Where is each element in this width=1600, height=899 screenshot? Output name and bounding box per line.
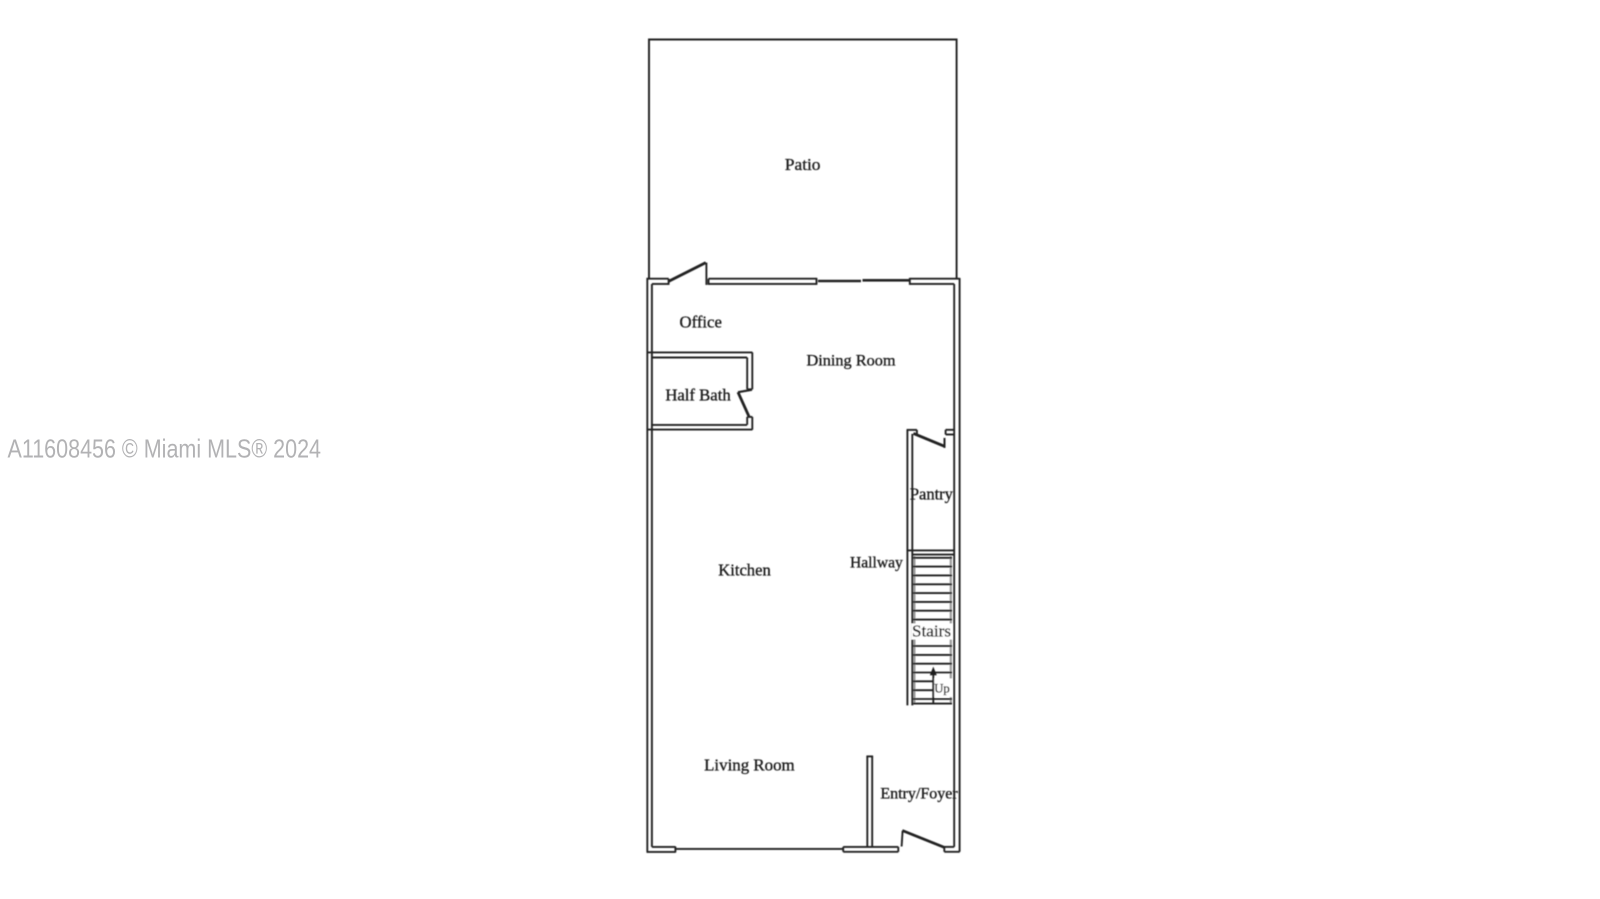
svg-text:A11608456 © Miami MLS® 2024: A11608456 © Miami MLS® 2024: [8, 434, 322, 464]
svg-text:Half Bath: Half Bath: [665, 386, 731, 405]
svg-text:Living Room: Living Room: [704, 756, 795, 775]
svg-text:Pantry: Pantry: [910, 485, 954, 504]
svg-text:Patio: Patio: [785, 155, 821, 174]
svg-text:Kitchen: Kitchen: [718, 561, 771, 580]
svg-text:Dining Room: Dining Room: [806, 351, 895, 370]
svg-text:Stairs: Stairs: [912, 621, 951, 640]
svg-text:Hallway: Hallway: [850, 554, 903, 571]
svg-text:Up: Up: [934, 681, 950, 695]
svg-text:Office: Office: [680, 312, 722, 331]
svg-text:Entry/Foyer: Entry/Foyer: [880, 786, 958, 803]
